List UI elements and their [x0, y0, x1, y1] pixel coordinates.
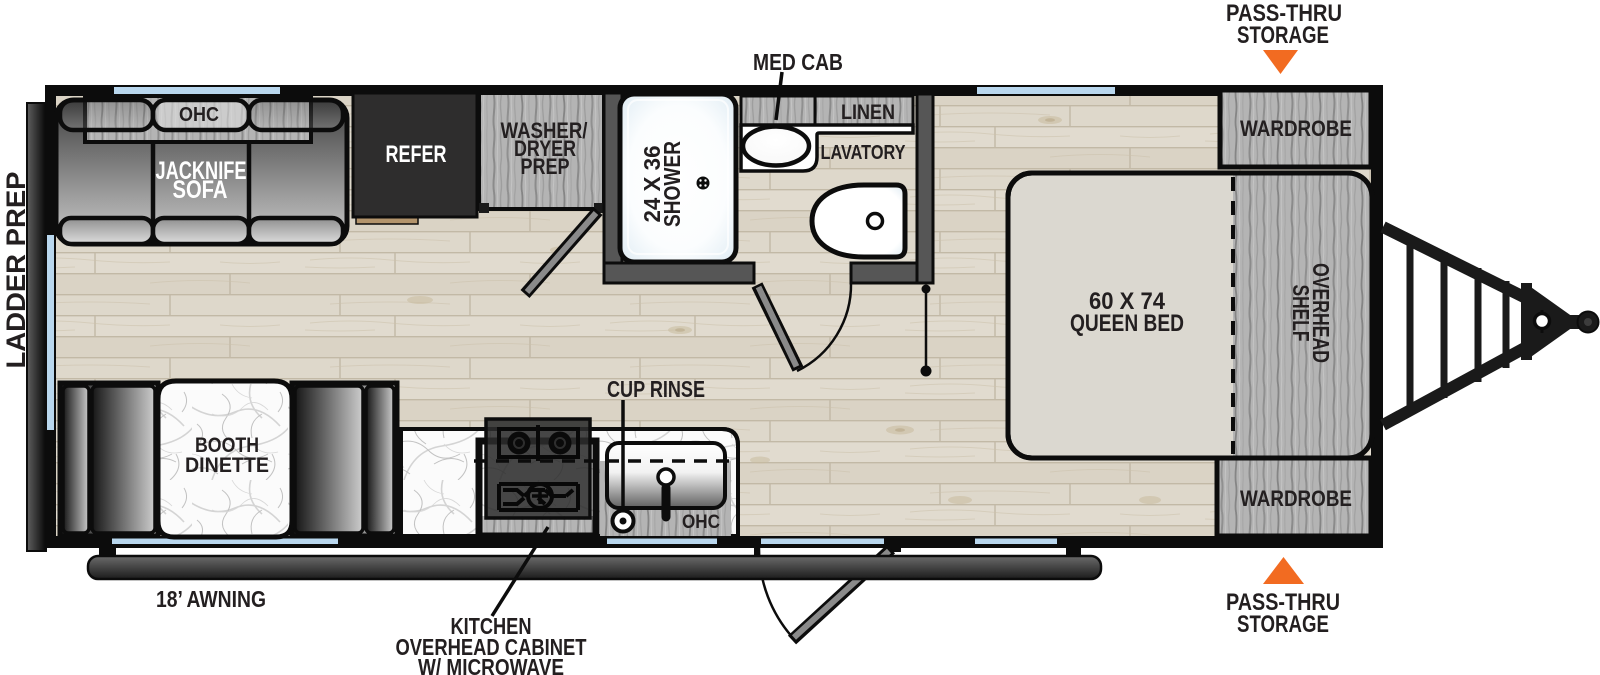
- svg-text:W/ MICROWAVE: W/ MICROWAVE: [418, 654, 564, 675]
- svg-text:REFER: REFER: [386, 141, 447, 168]
- svg-text:LAVATORY: LAVATORY: [821, 142, 907, 164]
- svg-text:MED CAB: MED CAB: [753, 49, 843, 75]
- svg-text:18’ AWNING: 18’ AWNING: [156, 586, 266, 612]
- svg-text:PREP: PREP: [521, 154, 570, 179]
- svg-text:LINEN: LINEN: [841, 101, 895, 124]
- svg-text:QUEEN BED: QUEEN BED: [1070, 310, 1184, 337]
- svg-text:CUP RINSE: CUP RINSE: [607, 376, 705, 402]
- svg-text:DINETTE: DINETTE: [185, 454, 269, 477]
- svg-text:SHELF: SHELF: [1288, 285, 1314, 342]
- svg-text:LADDER PREP: LADDER PREP: [1, 172, 31, 369]
- svg-text:WARDROBE: WARDROBE: [1240, 486, 1352, 511]
- svg-text:WARDROBE: WARDROBE: [1240, 116, 1352, 141]
- svg-text:SOFA: SOFA: [173, 176, 228, 204]
- svg-text:STORAGE: STORAGE: [1237, 22, 1329, 49]
- svg-text:OHC: OHC: [179, 104, 219, 126]
- svg-text:SHOWER: SHOWER: [659, 141, 685, 227]
- svg-text:STORAGE: STORAGE: [1237, 611, 1329, 638]
- svg-text:OHC: OHC: [682, 512, 720, 533]
